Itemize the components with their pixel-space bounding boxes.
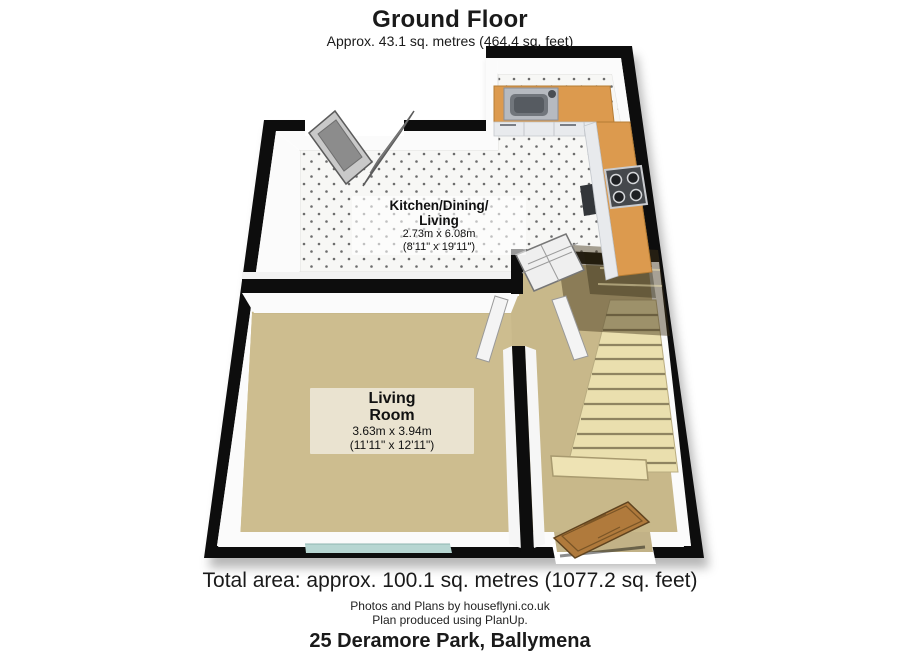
stair-bullnose-step — [551, 456, 648, 480]
total-area-text: Total area: approx. 100.1 sq. metres (10… — [0, 569, 900, 593]
floorplan-page: Ground Floor Approx. 43.1 sq. metres (46… — [0, 0, 900, 653]
hob — [605, 166, 647, 208]
wall-kitchen-living — [242, 272, 519, 313]
credit-photos-plans: Photos and Plans by houseflyni.co.uk — [0, 599, 900, 613]
living-name-line2: Room — [314, 407, 470, 424]
bay-window — [305, 544, 452, 553]
living-dims-metric: 3.63m x 3.94m — [314, 424, 470, 438]
property-address: 25 Deramore Park, Ballymena — [0, 630, 900, 653]
kitchen-dims-imperial: (8'11" x 19'11") — [356, 241, 522, 254]
kitchen-name-line1: Kitchen/Dining/ — [356, 198, 522, 213]
sink — [504, 88, 558, 120]
kitchen-room-label: Kitchen/Dining/ Living 2.73m x 6.08m (8'… — [352, 196, 526, 255]
living-dims-imperial: (11'11" x 12'11") — [314, 438, 470, 452]
credit-planup: Plan produced using PlanUp. — [0, 613, 900, 627]
faucet — [548, 90, 556, 98]
living-room-label: Living Room 3.63m x 3.94m (11'11" x 12'1… — [310, 388, 474, 454]
page-title: Ground Floor — [0, 6, 900, 34]
page-subtitle: Approx. 43.1 sq. metres (464.4 sq. feet) — [0, 33, 900, 49]
kitchen-name-line2: Living — [356, 213, 522, 228]
floorplan-drawing — [0, 0, 900, 653]
kitchen-dims-metric: 2.73m x 6.08m — [356, 228, 522, 241]
living-name-line1: Living — [314, 390, 470, 407]
